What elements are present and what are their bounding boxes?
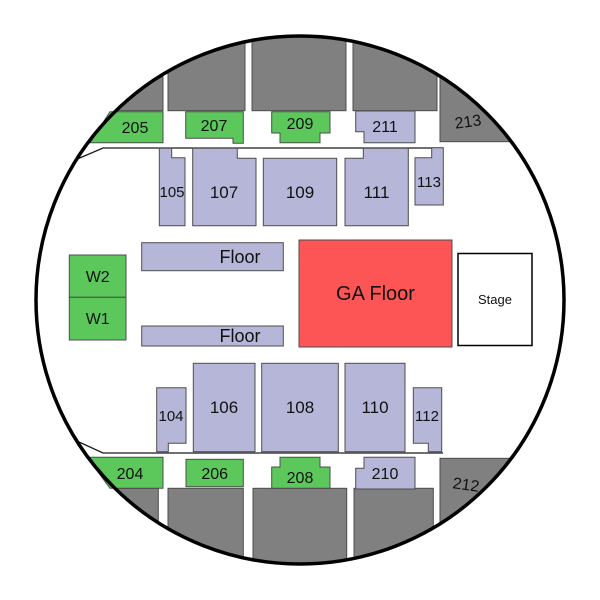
upper-bowl-block-bottom-1 [85, 488, 158, 573]
floor-bottom-shape[interactable] [142, 326, 284, 346]
section-107-label: 107 [210, 183, 238, 202]
floor-top-label: Floor [219, 247, 260, 267]
section-108-label: 108 [286, 398, 314, 417]
section-110-label: 110 [361, 398, 388, 417]
section-204-label: 204 [117, 466, 144, 483]
upper-bowl-block-top-3 [252, 30, 346, 111]
upper-bowl-block-top-4 [353, 30, 437, 111]
section-206-label: 206 [201, 466, 228, 483]
section-w2-label: W2 [86, 269, 110, 286]
section-113-label: 113 [417, 174, 441, 191]
section-106-label: 106 [210, 398, 238, 417]
section-211-label: 211 [372, 119, 398, 136]
upper-bowl-block-bottom-4 [354, 488, 433, 573]
upper-bowl-block-top-2 [168, 30, 245, 111]
section-112-label: 112 [415, 408, 439, 425]
section-205-label: 205 [122, 120, 149, 137]
upper-bowl-block-top-1 [85, 30, 163, 111]
upper-bowl-block-bottom-2 [168, 488, 243, 573]
section-105-label: 105 [159, 184, 184, 201]
ga-floor-label: GA Floor [336, 283, 415, 305]
section-208-label: 208 [287, 470, 314, 487]
section-209-label: 209 [287, 116, 314, 133]
section-207-label: 207 [201, 118, 228, 135]
section-109-label: 109 [286, 183, 314, 202]
section-210-label: 210 [372, 466, 399, 483]
section-212-shape[interactable] [440, 458, 545, 548]
section-104-label: 104 [158, 408, 183, 425]
section-w1-label: W1 [86, 311, 110, 328]
stage-label: Stage [478, 292, 512, 307]
floor-bottom-label: Floor [219, 326, 260, 346]
section-111-label: 111 [364, 183, 390, 202]
floor-top-shape[interactable] [142, 243, 284, 271]
venue-seat-map: 205 207 209 211 213 105 107 109 111 113 … [0, 0, 600, 600]
